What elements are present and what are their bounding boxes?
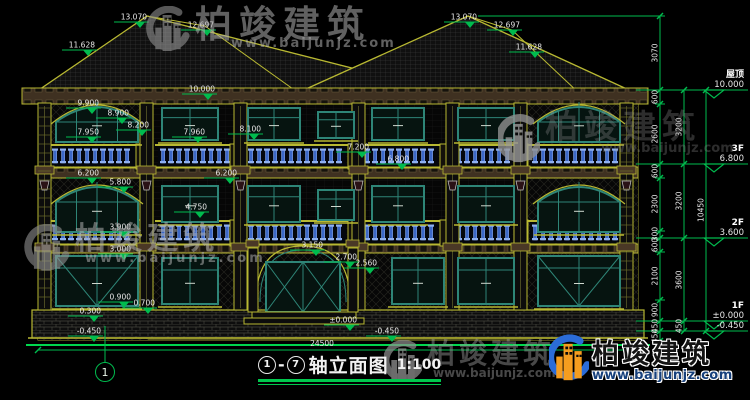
elevation-value: 7.950 (78, 128, 100, 137)
window (314, 112, 358, 141)
elevation-value: 12.697 (494, 21, 520, 30)
dimension-value: 2100 (651, 266, 660, 285)
pilaster-ornament (354, 181, 363, 190)
level-name: 屋顶 (726, 69, 744, 80)
floor-band-3f (38, 167, 638, 178)
level-value: 3.600 (720, 228, 744, 238)
dimension-value: 3200 (675, 117, 684, 136)
level-value: ±0.000 (713, 311, 744, 321)
dimension-value: 3600 (675, 270, 684, 289)
pilaster-ornament (448, 181, 457, 190)
window (244, 186, 304, 225)
level-name: 3F (732, 144, 744, 154)
level-name: 2F (732, 218, 744, 228)
window (454, 186, 518, 225)
window (388, 258, 448, 307)
dimension-value: 2600 (651, 124, 660, 143)
level-value: -0.450 (717, 321, 744, 331)
elevation-value: 9.900 (78, 99, 100, 108)
title-text: 轴立面图 (309, 351, 389, 378)
elevation-value: 8.100 (240, 125, 262, 134)
axis-circle-start: 1 (258, 356, 276, 374)
window (368, 186, 428, 225)
elevation-value: 3.150 (302, 241, 324, 250)
balustrade (47, 145, 139, 168)
roof (30, 16, 642, 98)
level-value: 10.000 (714, 80, 744, 90)
cad-elevation-screenshot: 13.07012.69711.62813.07012.69711.62810.0… (0, 0, 750, 400)
brand-logo-icon (549, 333, 589, 391)
level-name: 1F (732, 301, 744, 311)
dimension-value: 10450 (697, 198, 706, 222)
elevation-value: 3.900 (110, 223, 132, 232)
dimension-chain: 3070600260060023003006002100900450450 (651, 13, 666, 344)
dimension-value: 3200 (675, 191, 684, 210)
elevation-value: 11.628 (516, 43, 542, 52)
footer-logo: 柏竣建筑 www.baijunjz.com (549, 333, 733, 391)
elevation-value: 8.200 (128, 121, 150, 130)
elevation-value: ±0.000 (329, 316, 357, 325)
eave-fascia (22, 88, 648, 104)
elevation-value: 6.800 (388, 155, 410, 164)
dimension-value: 900 (651, 303, 660, 318)
balustrade (527, 145, 625, 168)
elevation-value: 3.000 (110, 245, 132, 254)
elevation-value: -0.450 (77, 327, 101, 336)
window (158, 258, 222, 307)
elevation-value: 7.200 (348, 143, 370, 152)
facade-details (35, 102, 636, 324)
window (534, 256, 624, 309)
elevation-value: 4.750 (186, 203, 208, 212)
window (314, 190, 358, 223)
pilaster-ornament (516, 181, 525, 190)
pilaster-ornament (142, 181, 151, 190)
elevation-value: 10.000 (189, 85, 215, 94)
elevation-value: 5.800 (110, 178, 132, 187)
elevation-value: 0.700 (134, 299, 156, 308)
pilaster (137, 103, 156, 310)
dimension-value: 450 (675, 319, 684, 334)
level-value: 6.800 (720, 154, 744, 164)
elevation-value: 0.900 (110, 293, 132, 302)
window (158, 108, 222, 143)
dimension-value: 600 (651, 90, 660, 105)
elevation-value: 6.200 (216, 169, 238, 178)
elevation-value: 0.300 (80, 307, 102, 316)
title-scale: 1:100 (397, 357, 442, 373)
pilaster-ornament (236, 181, 245, 190)
elevation-value: -0.450 (375, 327, 399, 336)
elevation-value: 2.560 (356, 259, 378, 268)
window (454, 258, 518, 307)
elevation-value: 12.697 (188, 21, 214, 30)
dimension-value: 600 (651, 164, 660, 179)
elevation-value: 11.628 (69, 41, 95, 50)
title-underline (258, 379, 441, 385)
elevation-value: 8.900 (108, 109, 130, 118)
dimension-value: 24500 (310, 339, 334, 348)
dimension-chain: 320032003600450 (675, 87, 690, 334)
balustrade (451, 145, 515, 168)
window (454, 108, 518, 143)
window (368, 108, 428, 143)
balustrade (243, 145, 349, 168)
elevation-value: 13.070 (121, 13, 147, 22)
dimension-value: 3070 (651, 43, 660, 62)
footer-brand-name: 柏竣建筑 (592, 341, 733, 369)
drawing-title-block: 1 - 7 轴立面图 1:100 (258, 351, 441, 385)
dimension-chain: 10450 (697, 87, 712, 334)
elevation-value: 6.200 (78, 169, 100, 178)
dimension-value: 2300 (651, 194, 660, 213)
elevation-value: 2.700 (336, 253, 358, 262)
dimension-value: 600 (651, 238, 660, 253)
footer-brand-url: www.baijunjz.com (592, 368, 733, 383)
elevation-value: 13.070 (451, 13, 477, 22)
title-separator: - (278, 355, 285, 374)
axis-number: 1 (102, 366, 109, 379)
balustrade (155, 145, 233, 168)
elevation-value: 7.960 (184, 128, 206, 137)
axis-circle-end: 7 (287, 356, 305, 374)
